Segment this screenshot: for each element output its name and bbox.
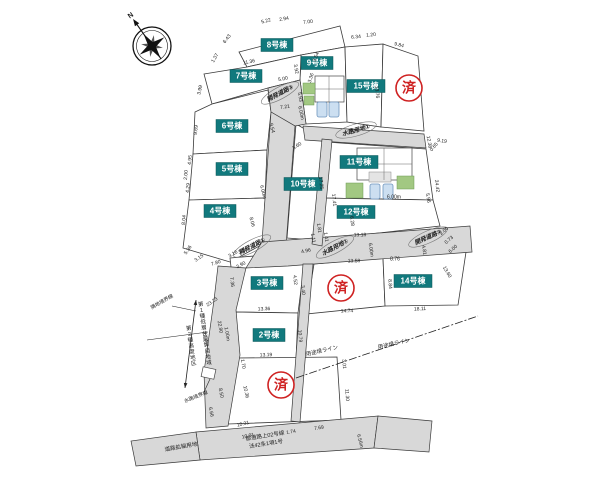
dimension-label: 6.28 bbox=[348, 216, 355, 227]
site-plan-svg: 第1種低層住居専用地域第2種高度地区8号棟9号棟7号棟15号棟6号棟5号棟4号棟… bbox=[0, 0, 600, 477]
lot-4-label: 4号棟 bbox=[210, 206, 231, 216]
dimension-label: 13.19 bbox=[260, 352, 273, 358]
dimension-label: 7.00 bbox=[303, 19, 314, 26]
dimension-label: 2.00 bbox=[183, 170, 190, 181]
dimension-label: 8.04 bbox=[181, 215, 188, 226]
garden-patch bbox=[304, 96, 314, 105]
car-footprint bbox=[370, 184, 380, 199]
dimension-label: 3.40 bbox=[299, 285, 306, 296]
dimension-label: 4.95 bbox=[187, 155, 194, 166]
dimension-label: 13.58 bbox=[348, 258, 361, 264]
lot-5-label: 5号棟 bbox=[222, 164, 243, 174]
dimension-label: 6.34 bbox=[351, 34, 361, 41]
dimension-label: 10.79 bbox=[296, 330, 303, 343]
garden-patch bbox=[303, 83, 315, 94]
garden-patch bbox=[346, 183, 363, 198]
dimension-label: 13.76 bbox=[373, 86, 380, 99]
dimension-label: 8.76 bbox=[390, 256, 400, 262]
dimension-label: 1.20 bbox=[366, 32, 376, 39]
building-footprint bbox=[369, 172, 391, 182]
sold-stamp-text: 済 bbox=[274, 377, 289, 393]
sold-stamp-1: 済 bbox=[396, 75, 422, 101]
lot-3-label: 3号棟 bbox=[257, 278, 278, 288]
lot-14-label: 14号棟 bbox=[401, 276, 427, 286]
lot-8-label: 8号棟 bbox=[267, 40, 288, 50]
lot-6-label: 6号棟 bbox=[222, 121, 243, 131]
road-pref-right bbox=[374, 416, 432, 452]
dimension-label: 13.36 bbox=[258, 306, 271, 312]
garden-patch bbox=[397, 176, 414, 189]
dimension-label: 11.30 bbox=[343, 389, 350, 402]
lot-10-label: 10号棟 bbox=[291, 179, 317, 189]
dimension-label: 9.69 bbox=[193, 125, 200, 136]
sold-stamp-2: 済 bbox=[328, 275, 354, 301]
sold-stamp-3: 済 bbox=[268, 372, 294, 398]
dimension-label: 18.11 bbox=[414, 306, 427, 313]
sold-stamp-text: 済 bbox=[402, 80, 417, 96]
dimension-label: 3.01 bbox=[340, 359, 347, 369]
lot-2-label: 2号棟 bbox=[259, 330, 280, 340]
lot-12-label: 12号棟 bbox=[344, 207, 370, 217]
dimension-label: 14.74 bbox=[341, 308, 354, 314]
dimension-label: 8.84 bbox=[386, 279, 393, 289]
lot-11-label: 11号棟 bbox=[347, 157, 372, 167]
car-footprint bbox=[317, 102, 327, 117]
dimension-label: 13.18 bbox=[354, 232, 367, 238]
sold-stamp-text: 済 bbox=[334, 280, 349, 296]
site-plan-map: 第1種低層住居専用地域第2種高度地区8号棟9号棟7号棟15号棟6号棟5号棟4号棟… bbox=[0, 0, 600, 477]
dimension-label: 6.00m bbox=[387, 194, 401, 200]
dimension-label: 7.36 bbox=[228, 277, 235, 288]
lot-7-label: 7号棟 bbox=[236, 71, 257, 81]
car-footprint bbox=[329, 102, 339, 117]
dimension-label: 4.52 bbox=[291, 275, 298, 286]
dimension-label: 4.29 bbox=[185, 183, 192, 194]
